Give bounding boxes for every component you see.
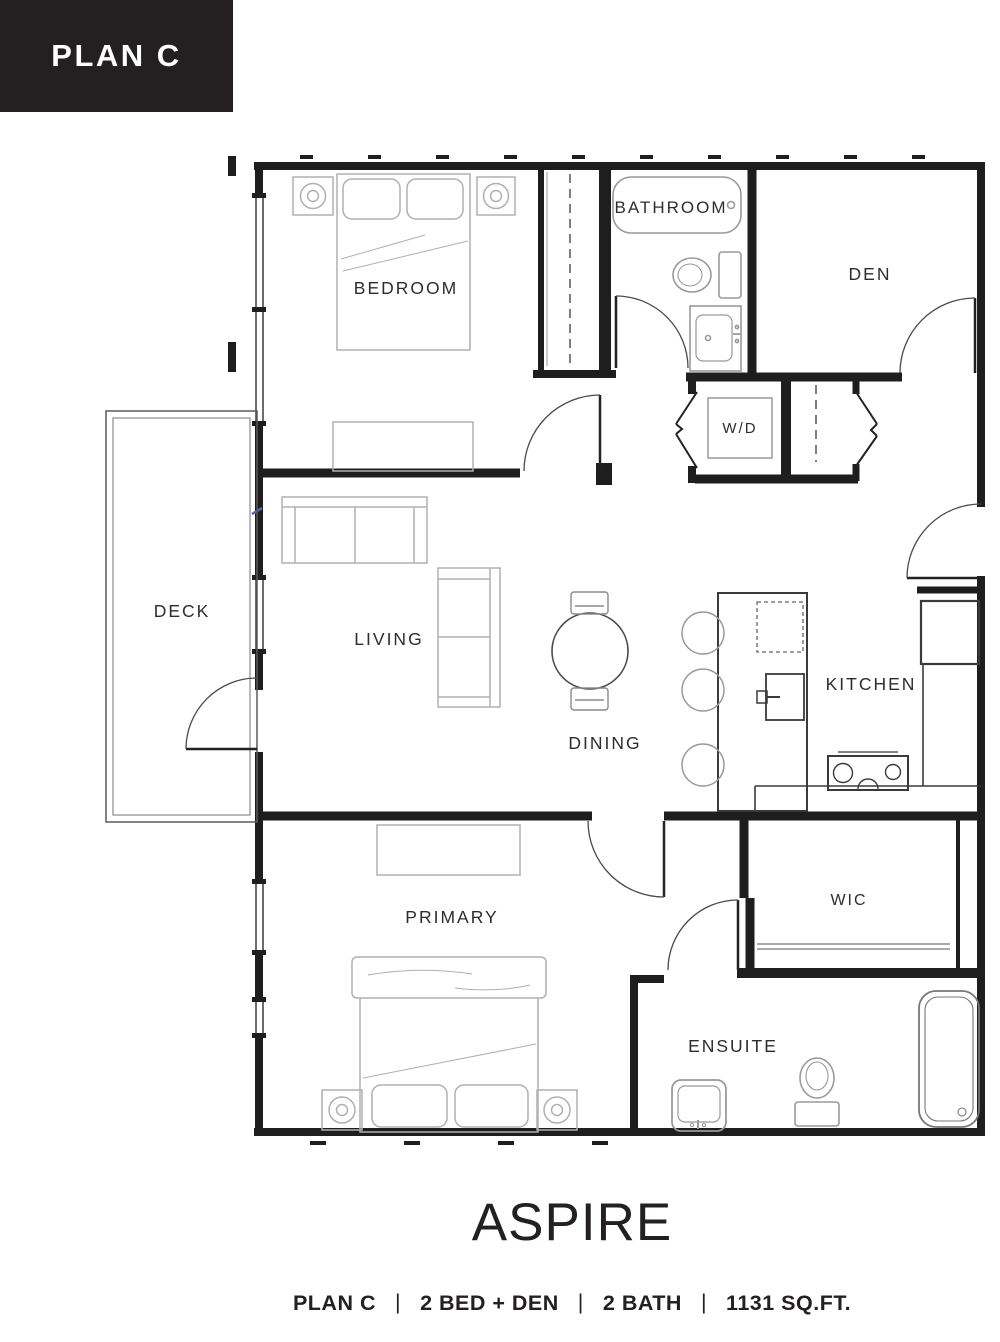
floorplan-svg: BEDROOM BATHROOM DEN W/D DECK LIVING DIN… (0, 0, 1000, 1342)
living-furniture (282, 497, 500, 707)
spec-row: PLAN C | 2 BED + DEN | 2 BATH | 1131 SQ.… (72, 1293, 1000, 1315)
room-label-dining: DINING (568, 733, 641, 753)
room-label-laundry: W/D (722, 420, 757, 437)
bedroom-furniture (293, 174, 515, 471)
floorplan-page: PLAN C (0, 0, 1000, 1342)
footer: ASPIRE PLAN C | 2 BED + DEN | 2 BATH | 1… (72, 1196, 1000, 1315)
wic-shelf (757, 944, 950, 949)
primary-furniture (322, 825, 577, 1132)
toilet (673, 252, 741, 298)
spec-plan: PLAN C (293, 1293, 376, 1315)
room-label-bedroom: BEDROOM (354, 278, 458, 298)
spec-area: 1131 SQ.FT. (726, 1293, 851, 1315)
neighbor-wall-stubs (228, 156, 236, 372)
spec-separator: | (682, 1292, 726, 1314)
room-label-wic: WIC (830, 892, 867, 909)
bifold-doors (676, 392, 877, 468)
ensuite-toilet (795, 1058, 839, 1126)
room-label-ensuite: ENSUITE (688, 1036, 778, 1056)
room-label-kitchen: KITCHEN (826, 674, 917, 694)
spec-beds: 2 BED + DEN (420, 1293, 559, 1315)
stove (828, 752, 908, 790)
ensuite-sink (672, 1080, 726, 1131)
room-label-deck: DECK (154, 601, 211, 621)
kitchen-island (718, 593, 807, 811)
spec-separator: | (376, 1292, 420, 1314)
room-label-primary: PRIMARY (405, 907, 498, 927)
ensuite-bathtub (919, 991, 979, 1127)
building-name: ASPIRE (72, 1196, 1000, 1249)
door-swing-arcs (186, 296, 981, 970)
room-label-den: DEN (849, 264, 892, 284)
ensuite-fixtures (672, 991, 979, 1131)
dining-furniture (552, 592, 628, 710)
spec-separator: | (559, 1292, 603, 1314)
spec-baths: 2 BATH (603, 1293, 682, 1315)
sink-vanity (690, 306, 741, 371)
room-label-bathroom: BATHROOM (615, 198, 728, 217)
room-label-living: LIVING (354, 629, 423, 649)
fridge (921, 601, 979, 664)
window-strips (252, 193, 266, 1038)
kitchen-fixtures (682, 593, 981, 811)
